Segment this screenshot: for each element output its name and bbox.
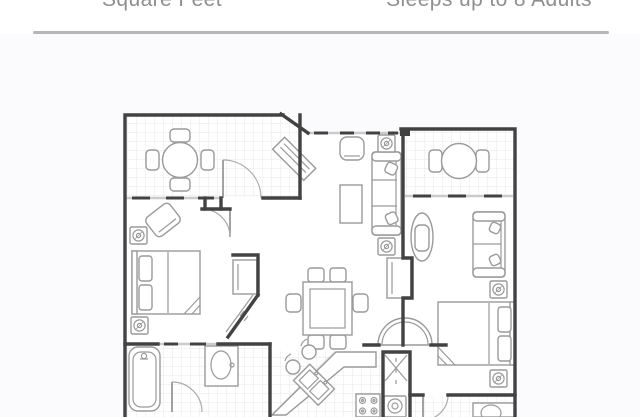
balcony-chair: [476, 150, 489, 172]
stove: [356, 394, 380, 417]
media-console-tv: [387, 258, 411, 298]
circle-fixture-icon: [130, 227, 147, 244]
dining-chair: [330, 268, 346, 282]
circle-fixture-icon: [490, 370, 507, 387]
pillow: [139, 256, 152, 281]
sofa: [372, 152, 401, 235]
bathroom-sink: [205, 346, 238, 386]
coffee-table: [340, 185, 362, 223]
balcony-chair: [170, 129, 190, 142]
dining-chair: [353, 294, 368, 312]
circle-fixture-icon: [378, 238, 395, 255]
balcony-chair: [146, 150, 159, 170]
studio-bathroom-sink: [473, 403, 515, 417]
master-bed: [132, 251, 200, 314]
dining-chair: [330, 335, 346, 349]
sleeps-label: Sleeps up to 8 Adults: [386, 0, 592, 12]
round-patio-table: [163, 143, 198, 178]
circle-fixture-icon: [490, 281, 507, 298]
circle-fixture-icon: [378, 135, 395, 152]
balcony-chair: [170, 178, 190, 191]
pillow: [498, 307, 511, 332]
bedroom-dresser-tv: [233, 260, 257, 294]
pillow: [139, 285, 152, 310]
balcony-chair: [201, 150, 214, 170]
studio-bed: [438, 302, 515, 365]
pillow: [498, 336, 511, 361]
bathtub: [129, 347, 160, 411]
circle-fixture-icon: [131, 317, 148, 334]
balcony-chair: [429, 150, 442, 172]
dining-chair: [286, 294, 301, 312]
dining-chair: [308, 268, 324, 282]
studio-sofa: [473, 212, 505, 277]
floor-plan-drawing: [118, 105, 522, 417]
floor-plan-page: Square Feet Sleeps up to 8 Adults: [0, 0, 640, 417]
round-patio-table: [442, 144, 477, 179]
egg-chair: [411, 213, 433, 261]
square-feet-label: Square Feet: [102, 0, 222, 12]
washer-icon: [384, 396, 406, 417]
